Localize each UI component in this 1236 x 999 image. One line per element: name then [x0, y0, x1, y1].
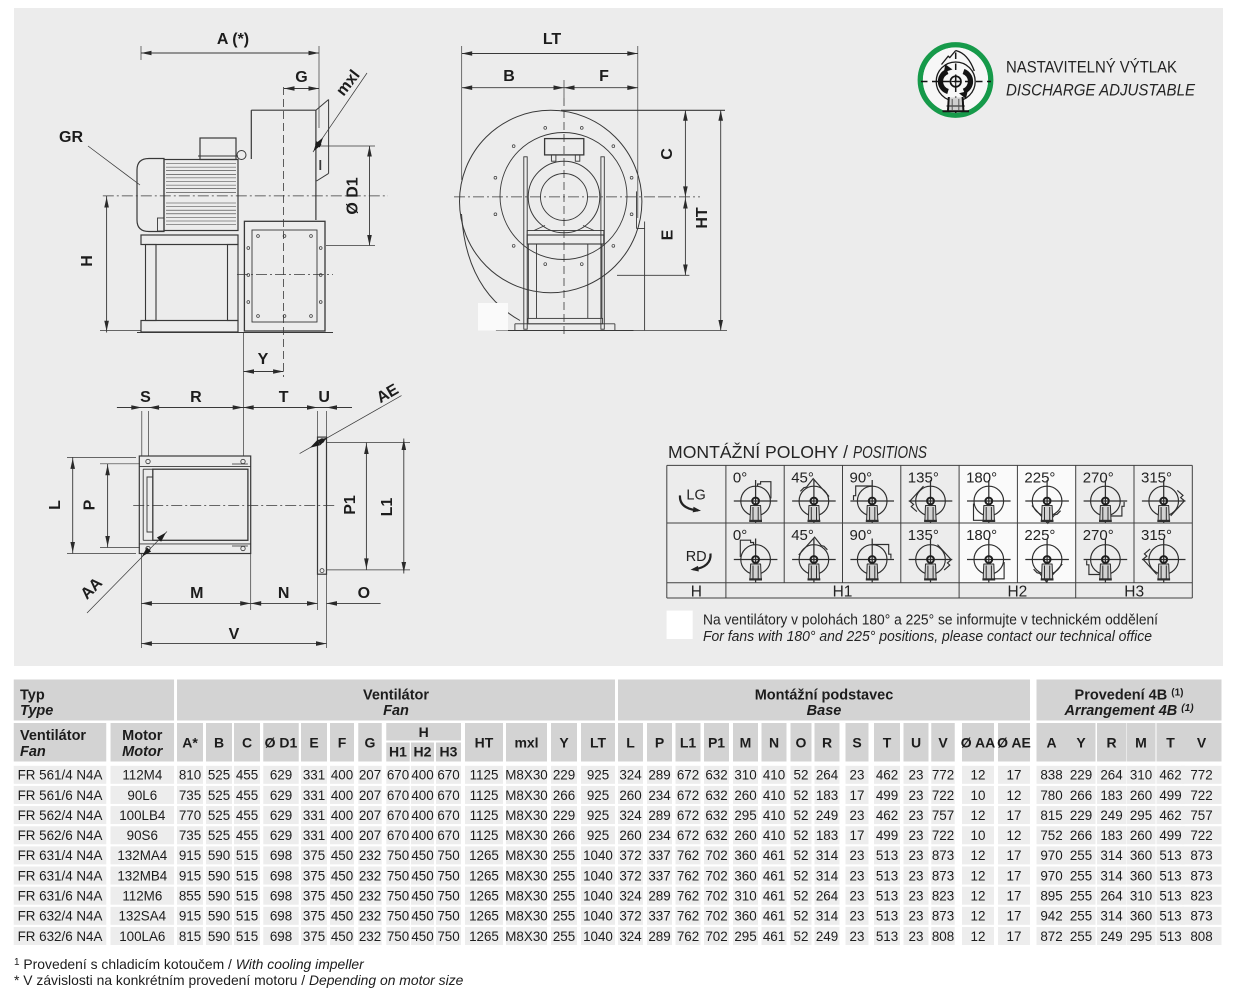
svg-text:762: 762 — [677, 848, 699, 863]
svg-text:372: 372 — [619, 909, 641, 924]
svg-text:873: 873 — [1190, 909, 1212, 924]
svg-text:23: 23 — [850, 889, 865, 904]
svg-text:232: 232 — [359, 929, 381, 944]
svg-text:F: F — [338, 735, 347, 751]
svg-text:183: 183 — [1100, 828, 1122, 843]
svg-text:207: 207 — [359, 788, 381, 803]
svg-text:672: 672 — [677, 788, 699, 803]
svg-text:410: 410 — [763, 828, 785, 843]
svg-text:780: 780 — [1040, 788, 1062, 803]
svg-text:450: 450 — [411, 848, 433, 863]
svg-text:R: R — [822, 735, 832, 751]
svg-text:255: 255 — [1070, 868, 1092, 883]
svg-text:360: 360 — [734, 909, 756, 924]
svg-text:590: 590 — [208, 929, 230, 944]
svg-text:289: 289 — [648, 929, 670, 944]
svg-text:895: 895 — [1040, 889, 1062, 904]
svg-text:670: 670 — [387, 828, 409, 843]
svg-text:735: 735 — [179, 828, 201, 843]
svg-text:M8X30: M8X30 — [505, 929, 547, 944]
svg-text:750: 750 — [387, 848, 409, 863]
svg-text:M8X30: M8X30 — [505, 848, 547, 863]
svg-text:670: 670 — [437, 768, 459, 783]
svg-text:HT: HT — [475, 735, 494, 751]
svg-text:331: 331 — [303, 808, 325, 823]
svg-text:H1: H1 — [833, 584, 853, 601]
svg-text:1125: 1125 — [470, 808, 499, 823]
svg-text:N: N — [769, 735, 779, 751]
svg-text:Provedení 4B (1): Provedení 4B (1) — [1075, 688, 1184, 704]
svg-text:808: 808 — [1190, 929, 1212, 944]
svg-text:360: 360 — [734, 868, 756, 883]
svg-text:462: 462 — [876, 808, 898, 823]
svg-text:375: 375 — [303, 889, 325, 904]
svg-text:698: 698 — [270, 848, 292, 863]
svg-text:225°: 225° — [1024, 527, 1055, 544]
svg-text:23: 23 — [909, 868, 924, 883]
svg-text:462: 462 — [1159, 808, 1181, 823]
svg-text:0°: 0° — [733, 469, 747, 486]
svg-text:1040: 1040 — [583, 848, 613, 863]
svg-text:A*: A* — [182, 735, 198, 751]
svg-text:260: 260 — [1130, 828, 1152, 843]
svg-text:FR 631/4 N4A: FR 631/4 N4A — [18, 848, 103, 863]
svg-text:1040: 1040 — [583, 929, 613, 944]
svg-text:Base: Base — [807, 703, 842, 719]
svg-text:762: 762 — [677, 929, 699, 944]
svg-text:255: 255 — [1070, 909, 1092, 924]
svg-text:Y: Y — [1076, 735, 1086, 751]
svg-text:499: 499 — [876, 788, 898, 803]
svg-text:229: 229 — [553, 808, 575, 823]
svg-text:183: 183 — [1100, 788, 1122, 803]
svg-text:590: 590 — [208, 889, 230, 904]
svg-text:772: 772 — [932, 768, 954, 783]
svg-text:632: 632 — [705, 808, 727, 823]
svg-text:mxl: mxl — [514, 735, 538, 751]
svg-text:289: 289 — [648, 808, 670, 823]
svg-text:207: 207 — [359, 828, 381, 843]
svg-text:590: 590 — [208, 909, 230, 924]
svg-text:L: L — [47, 500, 64, 510]
svg-text:750: 750 — [387, 929, 409, 944]
svg-text:331: 331 — [303, 828, 325, 843]
svg-text:S: S — [852, 735, 861, 751]
svg-text:266: 266 — [1070, 828, 1092, 843]
svg-text:O: O — [796, 735, 807, 751]
svg-text:52: 52 — [794, 909, 809, 924]
svg-text:1040: 1040 — [583, 889, 613, 904]
svg-text:499: 499 — [1159, 828, 1181, 843]
svg-text:310: 310 — [734, 768, 756, 783]
svg-text:1265: 1265 — [469, 868, 499, 883]
svg-text:U: U — [911, 735, 921, 751]
svg-text:23: 23 — [850, 909, 865, 924]
svg-text:183: 183 — [816, 828, 838, 843]
svg-text:H: H — [79, 255, 96, 267]
svg-text:90S6: 90S6 — [127, 828, 158, 843]
svg-text:FR 632/4 N4A: FR 632/4 N4A — [18, 909, 103, 924]
svg-text:499: 499 — [1159, 788, 1181, 803]
svg-text:255: 255 — [553, 929, 575, 944]
svg-text:461: 461 — [763, 909, 785, 924]
svg-text:23: 23 — [850, 929, 865, 944]
svg-text:100LA6: 100LA6 — [119, 929, 165, 944]
svg-text:455: 455 — [236, 788, 258, 803]
svg-text:762: 762 — [677, 909, 699, 924]
svg-text:770: 770 — [179, 808, 201, 823]
svg-text:525: 525 — [208, 768, 230, 783]
svg-text:815: 815 — [179, 929, 201, 944]
svg-text:52: 52 — [794, 808, 809, 823]
svg-text:455: 455 — [236, 828, 258, 843]
svg-text:229: 229 — [1070, 768, 1092, 783]
svg-text:450: 450 — [411, 929, 433, 944]
svg-text:52: 52 — [794, 868, 809, 883]
svg-text:400: 400 — [331, 808, 353, 823]
svg-text:264: 264 — [816, 768, 839, 783]
svg-text:H: H — [691, 584, 702, 601]
svg-text:FR 631/4 N4A: FR 631/4 N4A — [18, 868, 103, 883]
svg-text:735: 735 — [179, 788, 201, 803]
svg-text:FR 562/4 N4A: FR 562/4 N4A — [18, 808, 103, 823]
svg-text:L1: L1 — [680, 735, 697, 751]
svg-text:461: 461 — [763, 929, 785, 944]
svg-text:315°: 315° — [1141, 527, 1172, 544]
svg-text:23: 23 — [909, 909, 924, 924]
svg-text:Montážní podstavec: Montážní podstavec — [755, 688, 894, 704]
svg-text:1265: 1265 — [469, 929, 499, 944]
svg-text:400: 400 — [331, 828, 353, 843]
svg-text:12: 12 — [971, 768, 986, 783]
svg-text:629: 629 — [270, 808, 292, 823]
svg-text:360: 360 — [1130, 868, 1152, 883]
svg-text:232: 232 — [359, 848, 381, 863]
svg-text:LT: LT — [590, 735, 607, 751]
svg-text:722: 722 — [1190, 828, 1212, 843]
svg-text:513: 513 — [1159, 909, 1181, 924]
svg-text:F: F — [599, 68, 609, 85]
svg-text:264: 264 — [816, 889, 839, 904]
svg-text:873: 873 — [932, 909, 954, 924]
svg-text:310: 310 — [1130, 889, 1152, 904]
svg-text:314: 314 — [1100, 909, 1123, 924]
svg-text:310: 310 — [1130, 768, 1152, 783]
svg-text:255: 255 — [1070, 848, 1092, 863]
svg-text:P: P — [655, 735, 664, 751]
svg-text:Ventilátor: Ventilátor — [20, 728, 86, 744]
svg-text:23: 23 — [909, 788, 924, 803]
svg-text:400: 400 — [411, 768, 433, 783]
svg-text:B: B — [214, 735, 224, 751]
svg-text:450: 450 — [331, 848, 353, 863]
svg-text:52: 52 — [794, 848, 809, 863]
svg-text:515: 515 — [236, 868, 258, 883]
svg-text:722: 722 — [932, 788, 954, 803]
svg-text:337: 337 — [648, 848, 670, 863]
svg-text:V: V — [229, 626, 240, 643]
svg-text:255: 255 — [553, 909, 575, 924]
svg-text:324: 324 — [619, 929, 642, 944]
svg-text:450: 450 — [331, 889, 353, 904]
svg-text:MONTÁŽNÍ POLOHY /: MONTÁŽNÍ POLOHY / — [668, 442, 848, 462]
svg-text:324: 324 — [619, 808, 642, 823]
svg-text:POSITIONS: POSITIONS — [853, 442, 927, 462]
svg-text:R: R — [190, 389, 202, 406]
svg-text:337: 337 — [648, 868, 670, 883]
svg-text:Ø D1: Ø D1 — [345, 177, 362, 214]
svg-text:H2: H2 — [414, 744, 432, 760]
svg-text:Y: Y — [559, 735, 569, 751]
svg-text:23: 23 — [909, 848, 924, 863]
svg-text:FR 561/6 N4A: FR 561/6 N4A — [18, 788, 103, 803]
svg-text:632: 632 — [705, 768, 727, 783]
svg-text:629: 629 — [270, 788, 292, 803]
svg-text:450: 450 — [331, 868, 353, 883]
svg-text:815: 815 — [1040, 808, 1062, 823]
svg-text:Type: Type — [20, 703, 53, 719]
svg-text:455: 455 — [236, 768, 258, 783]
svg-text:757: 757 — [932, 808, 954, 823]
svg-text:295: 295 — [1130, 808, 1152, 823]
svg-text:E: E — [660, 229, 677, 240]
svg-text:R: R — [1106, 735, 1116, 751]
svg-text:232: 232 — [359, 889, 381, 904]
svg-text:52: 52 — [794, 929, 809, 944]
svg-text:266: 266 — [553, 788, 575, 803]
svg-text:1125: 1125 — [470, 788, 499, 803]
svg-text:LT: LT — [543, 31, 562, 48]
svg-text:M8X30: M8X30 — [505, 808, 547, 823]
svg-text:12: 12 — [971, 808, 986, 823]
svg-text:513: 513 — [1159, 889, 1181, 904]
svg-text:10: 10 — [971, 788, 986, 803]
svg-text:M8X30: M8X30 — [505, 889, 547, 904]
svg-text:461: 461 — [763, 848, 785, 863]
svg-text:698: 698 — [270, 889, 292, 904]
svg-text:331: 331 — [303, 768, 325, 783]
svg-text:672: 672 — [677, 768, 699, 783]
svg-text:260: 260 — [1130, 788, 1152, 803]
svg-text:Ø AE: Ø AE — [997, 735, 1031, 751]
svg-text:400: 400 — [331, 788, 353, 803]
svg-text:183: 183 — [816, 788, 838, 803]
svg-text:B: B — [503, 68, 515, 85]
svg-text:702: 702 — [705, 889, 727, 904]
svg-text:450: 450 — [331, 929, 353, 944]
svg-text:Ø AA: Ø AA — [961, 735, 995, 751]
svg-text:515: 515 — [236, 929, 258, 944]
svg-text:23: 23 — [909, 889, 924, 904]
svg-text:S: S — [140, 389, 151, 406]
svg-text:17: 17 — [1007, 768, 1022, 783]
svg-text:762: 762 — [677, 868, 699, 883]
svg-text:450: 450 — [411, 889, 433, 904]
svg-text:410: 410 — [763, 768, 785, 783]
svg-text:499: 499 — [876, 828, 898, 843]
svg-text:455: 455 — [236, 808, 258, 823]
svg-text:90L6: 90L6 — [127, 788, 157, 803]
svg-text:P1: P1 — [708, 735, 725, 751]
svg-text:NASTAVITELNÝ VÝTLAK: NASTAVITELNÝ VÝTLAK — [1006, 58, 1178, 77]
svg-text:750: 750 — [437, 848, 459, 863]
svg-text:270°: 270° — [1083, 527, 1114, 544]
svg-text:M8X30: M8X30 — [505, 788, 547, 803]
svg-text:266: 266 — [553, 828, 575, 843]
svg-text:823: 823 — [932, 889, 954, 904]
svg-text:* V závislosti na konkrétním p: * V závislosti na konkrétním provedení m… — [14, 972, 464, 988]
svg-text:255: 255 — [553, 868, 575, 883]
svg-text:12: 12 — [971, 848, 986, 863]
svg-text:Y: Y — [258, 351, 269, 368]
svg-text:855: 855 — [179, 889, 201, 904]
svg-text:90°: 90° — [850, 469, 873, 486]
svg-text:462: 462 — [1159, 768, 1181, 783]
svg-text:295: 295 — [1130, 929, 1152, 944]
svg-text:249: 249 — [1100, 929, 1122, 944]
svg-text:375: 375 — [303, 848, 325, 863]
svg-text:FR 561/4 N4A: FR 561/4 N4A — [18, 768, 103, 783]
svg-text:375: 375 — [303, 929, 325, 944]
svg-text:513: 513 — [876, 929, 898, 944]
svg-text:90°: 90° — [850, 527, 873, 544]
svg-text:M8X30: M8X30 — [505, 909, 547, 924]
svg-text:1125: 1125 — [470, 828, 499, 843]
svg-text:255: 255 — [553, 889, 575, 904]
svg-text:V: V — [1197, 735, 1207, 751]
svg-text:289: 289 — [648, 889, 670, 904]
svg-text:873: 873 — [1190, 848, 1212, 863]
svg-text:590: 590 — [208, 868, 230, 883]
svg-text:750: 750 — [437, 909, 459, 924]
svg-text:838: 838 — [1040, 768, 1062, 783]
svg-text:17: 17 — [850, 788, 865, 803]
svg-text:264: 264 — [1100, 768, 1123, 783]
svg-text:410: 410 — [763, 788, 785, 803]
svg-text:314: 314 — [816, 868, 839, 883]
svg-text:672: 672 — [677, 828, 699, 843]
svg-text:925: 925 — [587, 828, 609, 843]
svg-text:513: 513 — [1159, 929, 1181, 944]
svg-text:872: 872 — [1040, 929, 1062, 944]
svg-text:698: 698 — [270, 868, 292, 883]
svg-text:410: 410 — [763, 808, 785, 823]
svg-text:A: A — [1046, 735, 1056, 751]
svg-text:M: M — [1135, 735, 1147, 751]
svg-text:M: M — [190, 585, 203, 602]
svg-text:Motor: Motor — [122, 728, 163, 744]
svg-text:1265: 1265 — [469, 889, 499, 904]
svg-text:17: 17 — [1007, 909, 1022, 924]
svg-text:702: 702 — [705, 909, 727, 924]
svg-text:315°: 315° — [1141, 469, 1172, 486]
svg-text:513: 513 — [1159, 868, 1181, 883]
svg-text:23: 23 — [909, 808, 924, 823]
svg-text:1 Provedení s chladicím kotouč: 1 Provedení s chladicím kotoučem / With … — [14, 956, 365, 972]
svg-text:314: 314 — [816, 909, 839, 924]
svg-text:513: 513 — [1159, 848, 1181, 863]
svg-text:FR 631/6 N4A: FR 631/6 N4A — [18, 889, 103, 904]
svg-text:132MA4: 132MA4 — [117, 848, 167, 863]
svg-text:112M6: 112M6 — [122, 889, 162, 904]
svg-text:722: 722 — [1190, 788, 1212, 803]
svg-text:17: 17 — [1007, 868, 1022, 883]
svg-text:461: 461 — [763, 889, 785, 904]
svg-text:400: 400 — [411, 828, 433, 843]
svg-text:873: 873 — [1190, 868, 1212, 883]
svg-text:Ventilátor: Ventilátor — [363, 688, 429, 704]
svg-text:12: 12 — [971, 889, 986, 904]
svg-text:670: 670 — [387, 788, 409, 803]
svg-text:264: 264 — [1100, 889, 1123, 904]
svg-text:207: 207 — [359, 768, 381, 783]
svg-text:314: 314 — [816, 848, 839, 863]
svg-text:400: 400 — [331, 768, 353, 783]
svg-text:260: 260 — [734, 828, 756, 843]
svg-text:629: 629 — [270, 828, 292, 843]
svg-text:M: M — [740, 735, 752, 751]
svg-text:970: 970 — [1040, 868, 1062, 883]
svg-text:698: 698 — [270, 929, 292, 944]
svg-text:234: 234 — [648, 788, 671, 803]
svg-text:942: 942 — [1040, 909, 1062, 924]
svg-text:Motor: Motor — [122, 744, 164, 760]
svg-text:135°: 135° — [908, 469, 939, 486]
svg-text:FR 562/6 N4A: FR 562/6 N4A — [18, 828, 103, 843]
svg-text:Typ: Typ — [20, 688, 45, 704]
svg-text:925: 925 — [587, 788, 609, 803]
svg-text:H: H — [419, 724, 429, 740]
svg-text:52: 52 — [794, 768, 809, 783]
svg-text:O: O — [358, 585, 370, 602]
svg-text:400: 400 — [411, 808, 433, 823]
svg-text:810: 810 — [179, 768, 201, 783]
svg-text:M8X30: M8X30 — [505, 828, 547, 843]
svg-text:632: 632 — [705, 828, 727, 843]
svg-text:M8X30: M8X30 — [505, 768, 547, 783]
svg-text:750: 750 — [387, 909, 409, 924]
svg-text:17: 17 — [1007, 889, 1022, 904]
svg-text:23: 23 — [850, 768, 865, 783]
svg-text:255: 255 — [1070, 929, 1092, 944]
svg-text:873: 873 — [932, 868, 954, 883]
svg-text:H2: H2 — [1007, 584, 1027, 601]
svg-text:L: L — [626, 735, 635, 751]
svg-text:23: 23 — [850, 868, 865, 883]
svg-text:17: 17 — [1007, 848, 1022, 863]
svg-text:515: 515 — [236, 909, 258, 924]
svg-text:12: 12 — [1007, 788, 1022, 803]
svg-text:372: 372 — [619, 848, 641, 863]
svg-text:360: 360 — [1130, 848, 1152, 863]
svg-text:360: 360 — [734, 848, 756, 863]
svg-text:873: 873 — [932, 848, 954, 863]
svg-text:513: 513 — [876, 889, 898, 904]
svg-text:750: 750 — [437, 929, 459, 944]
svg-text:135°: 135° — [908, 527, 939, 544]
svg-text:52: 52 — [794, 788, 809, 803]
svg-text:461: 461 — [763, 868, 785, 883]
svg-text:295: 295 — [734, 808, 756, 823]
svg-text:229: 229 — [1070, 808, 1092, 823]
svg-text:670: 670 — [437, 788, 459, 803]
svg-text:H3: H3 — [440, 744, 458, 760]
svg-text:772: 772 — [1190, 768, 1212, 783]
svg-text:For fans with 180° and 225° po: For fans with 180° and 225° positions, p… — [703, 628, 1152, 645]
svg-text:450: 450 — [331, 909, 353, 924]
svg-text:T: T — [883, 735, 892, 751]
svg-text:513: 513 — [876, 848, 898, 863]
